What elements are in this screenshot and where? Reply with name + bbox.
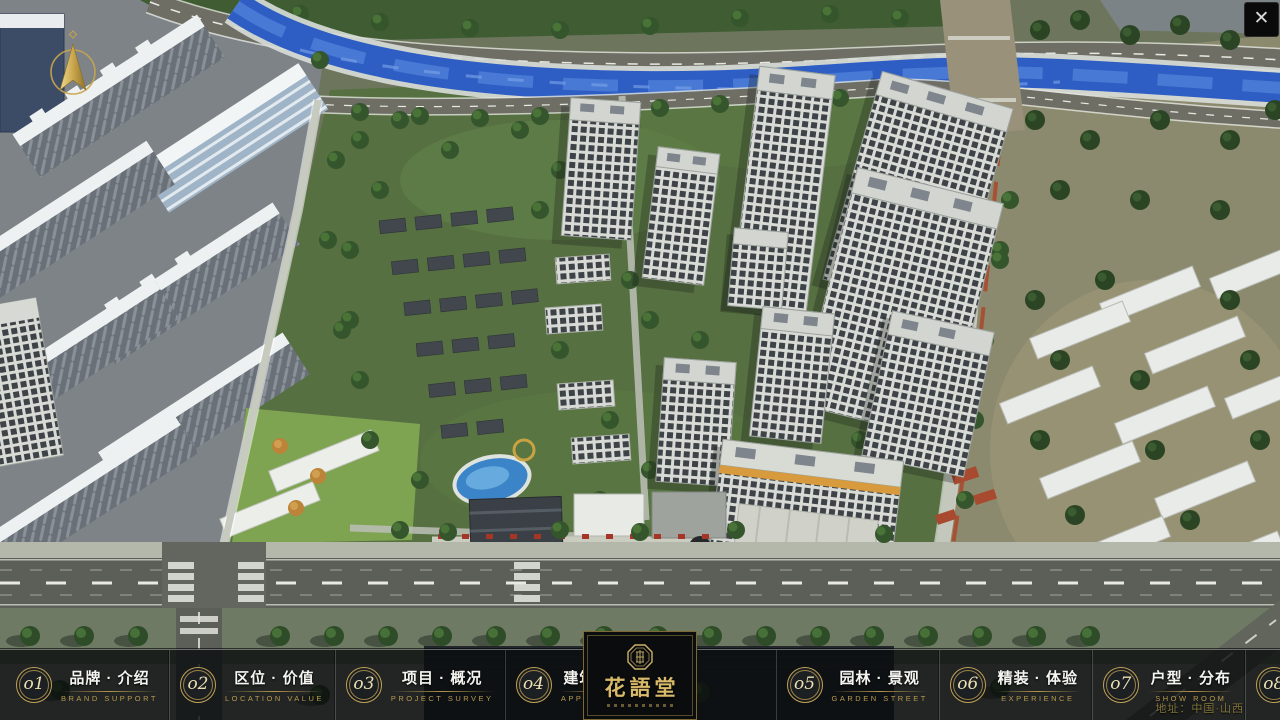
- project-logo[interactable]: 花語堂: [583, 631, 697, 720]
- nav-item-brand[interactable]: o1 品牌 · 介绍 BRAND SUPPORT: [6, 650, 169, 720]
- logo-caption-line: [607, 704, 673, 707]
- nav-badge-02: o2: [180, 667, 216, 703]
- gold-divider: [995, 691, 1081, 692]
- nav-badge-06: o6: [950, 667, 986, 703]
- nav-label: 精装 · 体验: [998, 667, 1078, 688]
- nav-item-location[interactable]: o2 区位 · 价值 LOCATION VALUE: [169, 650, 335, 720]
- project-address: 地址：中国·山西: [1155, 700, 1244, 716]
- nav-sublabel: PROJECT SURVEY: [391, 694, 494, 703]
- compass-icon: [42, 30, 104, 104]
- gold-divider: [1148, 691, 1234, 692]
- nav-item-community[interactable]: o8 一房 · 一景 COMMUNITY: [1245, 650, 1280, 720]
- close-button[interactable]: ✕: [1244, 2, 1279, 37]
- nav-badge-01: o1: [16, 667, 52, 703]
- gold-divider: [225, 691, 324, 692]
- nav-item-garden[interactable]: o5 园林 · 景观 GARDEN STREET: [776, 650, 939, 720]
- nav-label: 园林 · 景观: [840, 667, 920, 688]
- aerial-masterplan-render: [0, 0, 1280, 720]
- nav-badge-04: o4: [516, 667, 552, 703]
- nav-label: 户型 · 分布: [1151, 667, 1231, 688]
- nav-label: 区位 · 价值: [234, 667, 314, 688]
- nav-badge-07: o7: [1103, 667, 1139, 703]
- close-icon: ✕: [1254, 8, 1270, 29]
- nav-sublabel: BRAND SUPPORT: [61, 694, 158, 703]
- gold-divider: [61, 691, 158, 692]
- nav-label: 项目 · 概况: [402, 667, 482, 688]
- gold-divider: [832, 691, 928, 692]
- nav-sublabel: GARDEN STREET: [832, 694, 928, 703]
- nav-badge-03: o3: [346, 667, 382, 703]
- octagonal-seal-icon: [627, 644, 653, 670]
- nav-label: 品牌 · 介绍: [69, 667, 149, 688]
- logo-title: 花語堂: [605, 672, 680, 702]
- nav-item-project[interactable]: o3 项目 · 概况 PROJECT SURVEY: [335, 650, 505, 720]
- nav-badge-05: o5: [787, 667, 823, 703]
- compass-north-indicator: [42, 30, 104, 104]
- nav-sublabel: EXPERIENCE: [1001, 694, 1074, 703]
- nav-item-interior[interactable]: o6 精装 · 体验 EXPERIENCE: [939, 650, 1092, 720]
- nav-sublabel: LOCATION VALUE: [225, 694, 324, 703]
- gold-divider: [391, 691, 494, 692]
- nav-badge-08: o8: [1256, 667, 1280, 703]
